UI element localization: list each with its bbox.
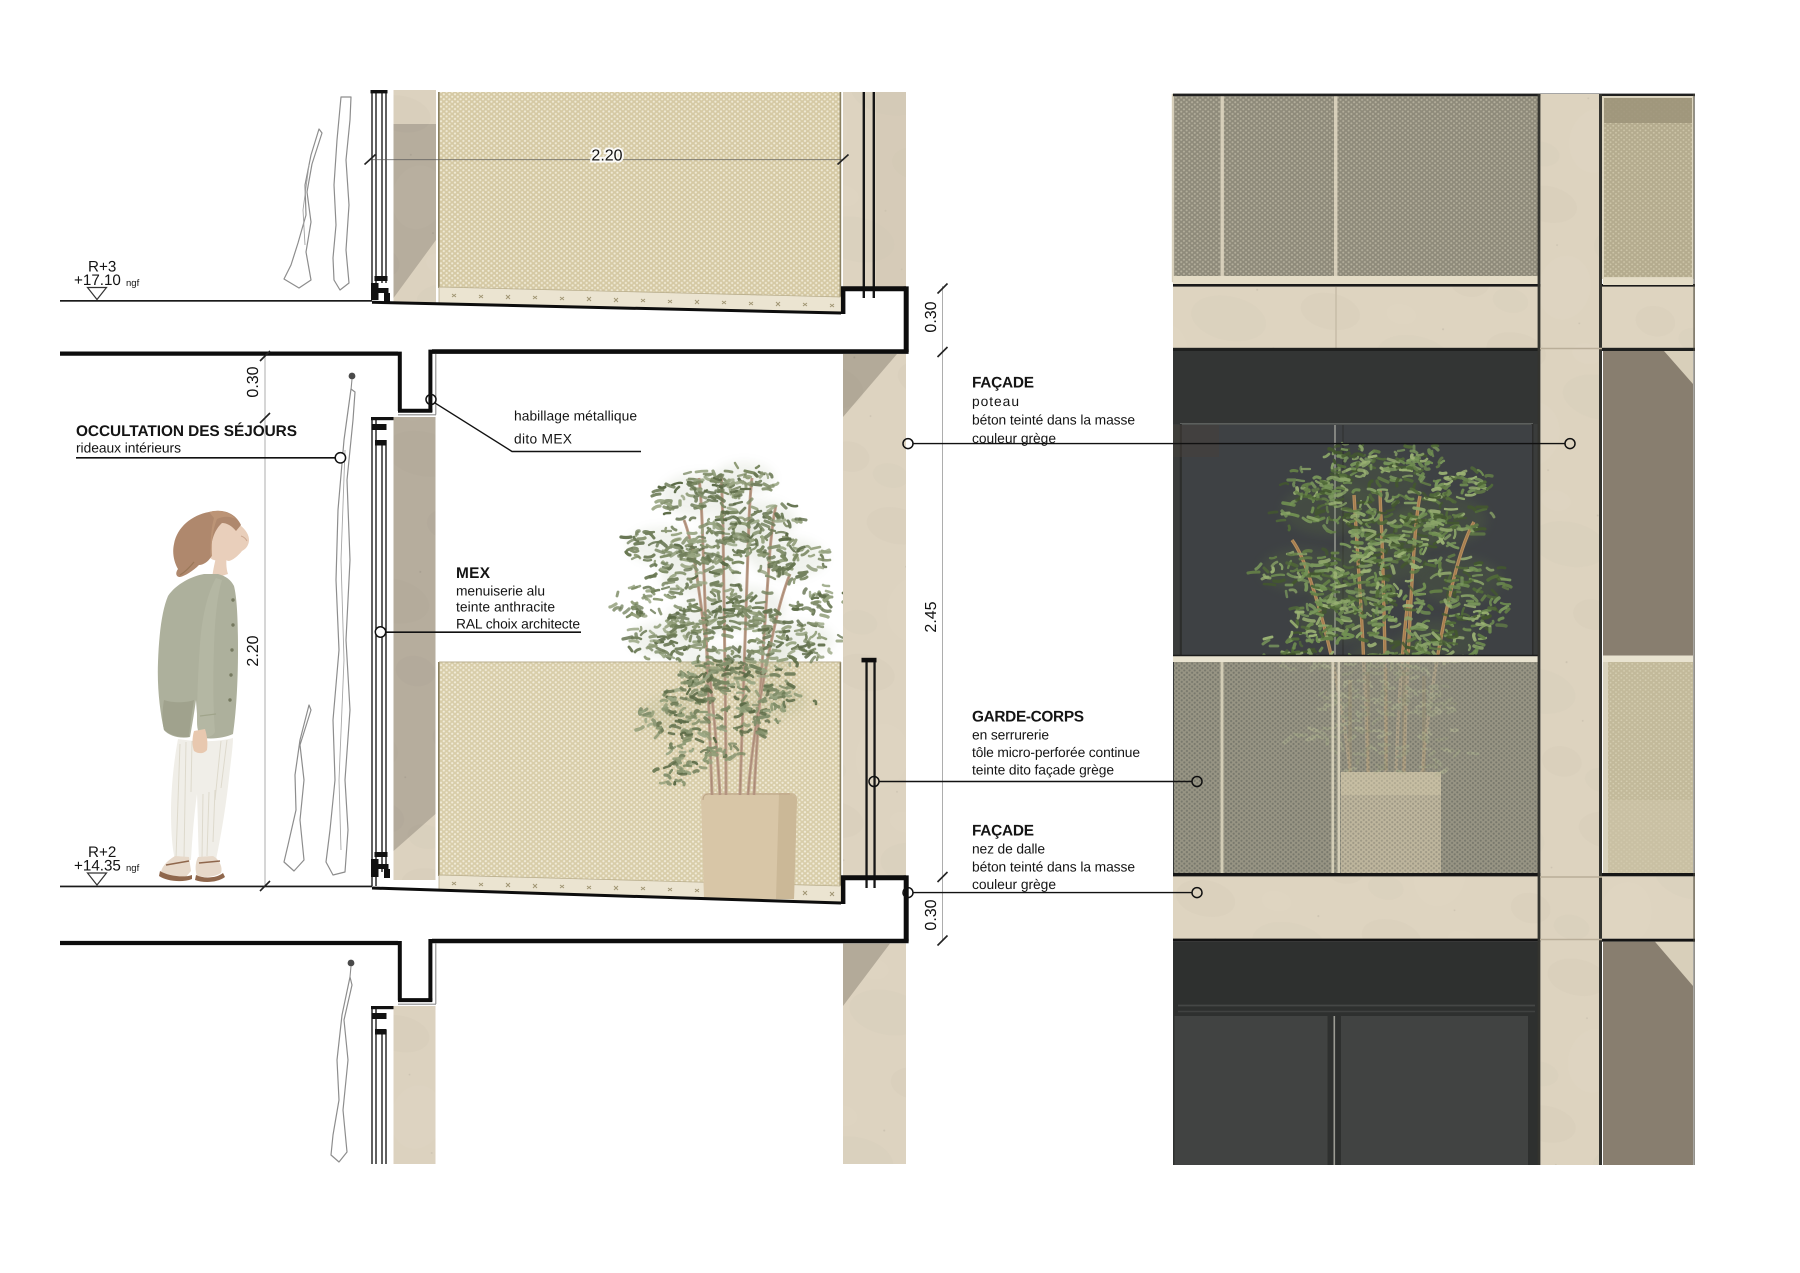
svg-text:nez de dalle: nez de dalle	[972, 842, 1045, 857]
svg-text:couleur grège: couleur grège	[972, 877, 1056, 892]
svg-text:GARDE-CORPS: GARDE-CORPS	[972, 709, 1084, 726]
svg-text:0.30: 0.30	[923, 301, 940, 332]
svg-text:ngf: ngf	[126, 278, 140, 289]
svg-text:2.20: 2.20	[591, 148, 622, 165]
svg-text:FAÇADE: FAÇADE	[972, 375, 1034, 392]
svg-text:teinte dito façade grège: teinte dito façade grège	[972, 763, 1114, 778]
svg-text:en serrurerie: en serrurerie	[972, 728, 1049, 743]
svg-text:tôle micro-perforée continue: tôle micro-perforée continue	[972, 745, 1140, 760]
svg-text:menuiserie alu: menuiserie alu	[456, 584, 545, 599]
svg-text:2.20: 2.20	[245, 635, 262, 666]
svg-text:+17.10: +17.10	[74, 272, 121, 289]
svg-text:béton teinté dans la masse: béton teinté dans la masse	[972, 860, 1135, 875]
svg-text:0.30: 0.30	[923, 899, 940, 930]
svg-text:2.45: 2.45	[923, 601, 940, 632]
svg-text:MEX: MEX	[456, 565, 491, 582]
svg-text:dito MEX: dito MEX	[514, 432, 572, 447]
svg-text:+14.35: +14.35	[74, 858, 121, 875]
svg-text:rideaux intérieurs: rideaux intérieurs	[76, 441, 181, 456]
svg-text:teinte anthracite: teinte anthracite	[456, 600, 555, 615]
svg-text:habillage métallique: habillage métallique	[514, 409, 637, 424]
svg-text:0.30: 0.30	[245, 366, 262, 397]
svg-text:FAÇADE: FAÇADE	[972, 823, 1034, 840]
svg-text:RAL choix architecte: RAL choix architecte	[456, 617, 580, 632]
svg-text:ngf: ngf	[126, 863, 140, 874]
svg-text:béton teinté dans la masse: béton teinté dans la masse	[972, 413, 1135, 428]
svg-text:poteau: poteau	[972, 394, 1019, 409]
svg-text:OCCULTATION DES SÉJOURS: OCCULTATION DES SÉJOURS	[76, 422, 297, 440]
